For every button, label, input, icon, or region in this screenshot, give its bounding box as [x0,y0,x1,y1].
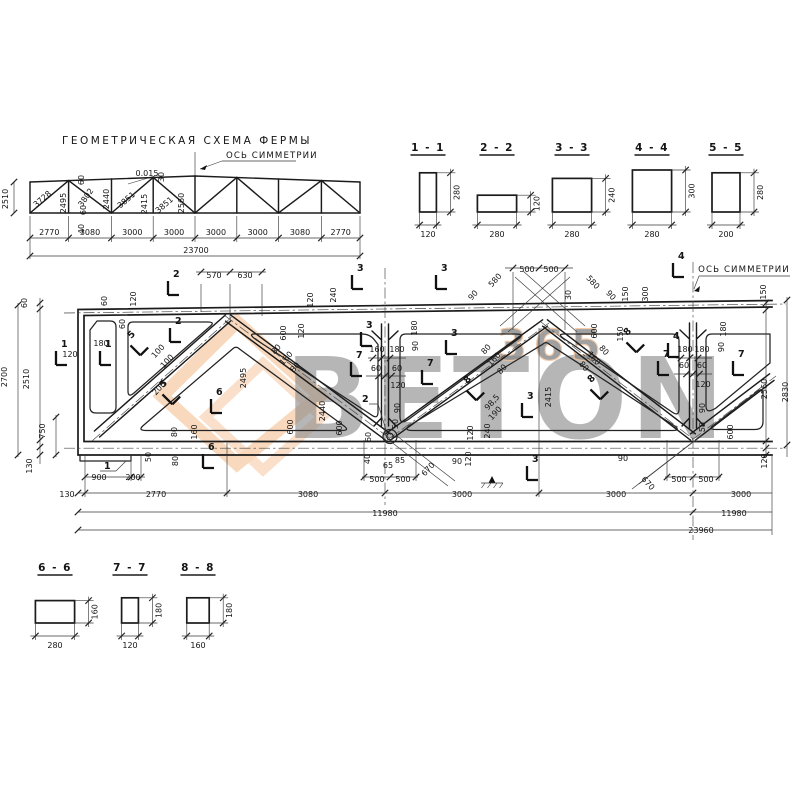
section-mark-5: 5 [122,329,149,356]
dim-label: 60 [679,361,689,370]
scheme-panel-dim: 2770 [331,228,351,237]
path-shape [100,351,111,365]
dim-label: 150 [759,284,768,299]
rect-shape [35,601,74,623]
section-label: 6 - 6 [38,562,72,574]
path-shape [117,594,158,640]
dim-label: 2510 [1,189,10,209]
scheme-axis-label: Ось симметрии [226,151,318,161]
dim-label: 90 [698,403,707,413]
section-height-dim: 160 [91,604,100,619]
path-shape [182,594,228,640]
dim-label: 600 [286,419,295,434]
dim-label: 60 [118,319,127,329]
section-label: 2 - 2 [480,142,514,154]
dim-label: 570 [206,271,221,280]
section-width-dim: 280 [644,230,659,239]
dim-label: 60 [100,296,109,306]
dim-label: 600 [590,323,599,338]
path-shape [415,169,456,229]
section-label: 5 - 5 [709,142,743,154]
dim-label: 3000 [452,490,472,499]
section-label: 3 - 3 [555,142,589,154]
section-4-4: 4 - 4280300 [627,142,696,239]
dim-label: 90 [393,403,402,413]
section-5-5: 5 - 5200280 [707,142,765,239]
dim-label: 160 [190,424,199,439]
dim-label: 60 [364,432,373,442]
scheme-panel-dim: 3000 [122,228,142,237]
section-8-8: 8 - 8160180 [181,562,234,650]
section-3-3: 3 - 3280240 [547,142,616,239]
dim-label: 120 [464,451,473,466]
dim-label: 120 [129,291,138,306]
dim-label: 180 [677,345,692,354]
dim-label: 750 [38,423,47,438]
section-mark-label: 2 [173,269,180,280]
dim-label: 85 [395,456,405,465]
dim-label: 2415 [544,387,553,407]
dim-label: 11980 [721,509,746,518]
section-mark-label: 1 [105,339,112,350]
dim-label: 50 [391,419,400,429]
path-shape [527,466,538,480]
dim-label: 2440 [318,401,327,421]
dim-label: 90 [604,289,618,303]
section-width-dim: 160 [190,641,205,650]
dim-label: 90 [466,289,480,303]
section-width-dim: 280 [47,641,62,650]
dim-label: 23960 [688,526,713,535]
section-mark-4: 4 [673,251,685,277]
section-mark-label: 2 [175,316,182,327]
dim-label: 120 [695,380,710,389]
rect-shape [420,173,437,212]
dim-label: 240 [483,423,492,438]
dim-label: 90 [717,342,726,352]
rect-shape [712,173,740,212]
section-mark-label: 3 [441,263,448,274]
section-6-6: 6 - 6280160 [30,562,99,650]
section-height-dim: 240 [608,188,617,203]
section-mark-label: 3 [527,391,534,402]
section-width-dim: 200 [718,230,733,239]
dim-label: 670 [639,475,656,492]
dim-label: 30 [564,290,573,300]
section-width-dim: 120 [420,230,435,239]
dim-label: 50 [144,452,153,462]
dim-label: 3000 [606,490,626,499]
path-shape [673,263,684,277]
section-height-dim: 180 [154,603,163,618]
rect-shape [187,598,209,623]
dim-label: 80 [170,427,179,437]
truss-drawing-svg: Геометрическая схема фермы Ось симметрии… [0,0,800,800]
dim-label: 500 [369,475,384,484]
sections-top: 1 - 11202802 - 22801203 - 32802404 - 428… [411,142,765,239]
dim-label: 120 [466,425,475,440]
path-shape [733,361,744,375]
section-mark-label: 4 [673,331,680,342]
drawing-sheet: Геометрическая схема фермы Ось симметрии… [0,0,800,800]
scheme-panel-dim: 2770 [39,228,59,237]
main-axis-label: Ось симметрии [698,265,790,275]
section-mark-label: 6 [216,387,223,398]
scheme-axis-arrow [200,165,207,170]
section-height-dim: 300 [688,183,697,198]
dim-label: 40 [77,224,86,234]
dim-label: 60 [392,364,402,373]
dim-label: 80 [171,456,180,466]
dim-label: 50 [698,422,707,432]
scheme-panel-dim: 3000 [206,228,226,237]
dim-label: 2415 [140,194,149,214]
scheme-total-dim: 23700 [183,246,208,255]
dim-label: 120 [306,292,315,307]
dim-label: 2560 [177,193,186,213]
dim-label: 600 [726,424,735,439]
dim-label: 150 [621,286,630,301]
dim-label: 120 [297,323,306,338]
rect-shape [552,178,591,212]
dim-label: 2560 [760,379,769,399]
scheme-title: Геометрическая схема фермы [62,135,312,147]
section-mark-3: 3 [436,263,448,289]
dim-label: 65 [383,461,393,470]
section-label: 4 - 4 [635,142,669,154]
path-shape [352,275,363,289]
section-label: 8 - 8 [181,562,215,574]
callout-2: 2 [362,394,369,405]
dim-label: 3000 [731,490,751,499]
dim-label: 60 [371,364,381,373]
dim-label: 200 [125,473,140,482]
dim-label: 11980 [372,509,397,518]
section-width-dim: 120 [122,641,137,650]
section-1-1: 1 - 1120280 [411,142,461,239]
dim-label: 500 [519,265,534,274]
section-height-dim: 280 [452,185,461,200]
dim-label: 2700 [0,367,9,387]
opening-end [90,321,116,413]
dim-label: 2495 [239,368,248,388]
section-height-dim: 120 [533,196,542,211]
dim-label: 900 [91,473,106,482]
callout-1: 1 [104,461,111,472]
section-height-dim: 180 [225,603,234,618]
dim-label: 180 [410,320,419,335]
section-mark-label: 3 [451,328,458,339]
path-shape [707,169,759,229]
section-width-dim: 280 [564,230,579,239]
dim-label: 90 [411,341,420,351]
section-mark-label: 3 [532,454,539,465]
rect-shape [122,598,139,623]
truss-scheme: Геометрическая схема фермы Ось симметрии… [1,135,363,259]
sections-bottom: 6 - 62801607 - 71201808 - 8160180 [30,562,234,650]
section-label: 1 - 1 [411,142,445,154]
dim-label: 60 [77,175,86,185]
level-mark-icon [481,476,503,488]
path-shape [436,275,447,289]
path-shape [481,483,503,488]
section-mark-label: 7 [356,350,363,361]
section-width-dim: 280 [489,230,504,239]
section-mark-label: 7 [738,349,745,360]
section-mark-label: 1 [61,339,68,350]
path-shape [547,174,610,229]
path-shape [168,281,179,295]
section-mark-label: 7 [427,358,434,369]
dim-label: 30 [157,172,166,182]
dim-label: 100 [159,353,176,370]
section-mark-2: 2 [170,316,182,342]
dim-label: 90 [618,454,628,463]
path-shape [627,166,690,229]
dim-label: 500 [395,475,410,484]
dim-label: 500 [671,475,686,484]
dim-label: 130 [25,458,34,473]
scheme-panel-dim: 3000 [164,228,184,237]
section-mark-3: 3 [352,263,364,289]
section-height-dim: 280 [756,185,765,200]
section-7-7: 7 - 7120180 [113,562,163,650]
dim-label: 500 [543,265,558,274]
dim-label: 2770 [146,490,166,499]
dim-label: 2830 [781,382,790,402]
dim-label: 60 [20,298,29,308]
dim-label: 180 [389,345,404,354]
section-mark-label: 4 [678,251,685,262]
dim-label: 60 [697,361,707,370]
dim-label: 120 [760,453,769,468]
section-mark-label: 6 [208,442,215,453]
dim-label: 3080 [298,490,318,499]
dim-label: 180 [719,321,728,336]
scheme-dim-labels: 251037282495380224403851241538512560600.… [1,169,186,234]
dim-label: 3728 [32,189,53,209]
scheme-panel-dim: 3000 [248,228,268,237]
dim-label: 580 [584,274,601,291]
dim-label: 300 [641,286,650,301]
scheme-axis-leader [200,161,296,169]
path-shape [203,454,214,468]
dim-label: 630 [237,271,252,280]
dim-label: 240 [329,287,338,302]
section-mark-2: 2 [168,269,180,295]
path-shape [472,191,535,229]
dim-label: 120 [62,350,77,359]
dim-label: 40 [363,454,372,464]
dim-label: 500 [698,475,713,484]
rect-shape [632,170,671,212]
dim-label: 130 [59,490,74,499]
section-label: 7 - 7 [113,562,147,574]
main-axis-leader [694,276,790,289]
section-mark-label: 3 [366,320,373,331]
section-2-2: 2 - 2280120 [472,142,541,239]
dim-label: 0.015 [136,169,159,178]
dim-label: 600 [335,420,344,435]
dim-label: 120 [390,381,405,390]
dim-label: 180 [694,345,709,354]
section-mark-label: 3 [357,263,364,274]
dim-label: 2495 [59,193,68,213]
dim-label: 580 [487,272,504,289]
dim-label: 60 [79,205,88,215]
path-shape [489,476,496,483]
section-mark-7: 7 [733,349,745,375]
dim-label: 2510 [22,369,31,389]
dim-label: 600 [279,325,288,340]
scheme-panel-dim: 3080 [290,228,310,237]
watermark-logo: BETON 365 [162,321,727,470]
dim-label: 3851 [154,195,175,215]
dim-label: 2440 [102,189,111,209]
dim-label: 90 [452,457,462,466]
section-mark-label: 7 [663,349,670,360]
path-shape [30,597,93,640]
path-shape [170,328,181,342]
rect-shape [477,195,516,212]
